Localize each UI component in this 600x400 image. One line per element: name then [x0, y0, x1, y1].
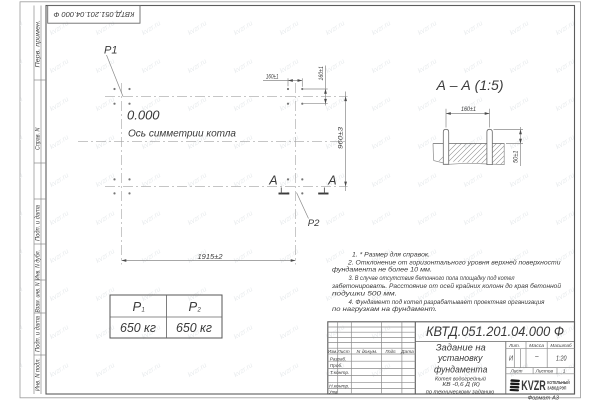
svg-text:по нагрузкам на фундамент.: по нагрузкам на фундамент. — [332, 305, 437, 313]
svg-text:Разраб.: Разраб. — [330, 357, 347, 362]
svg-text:Лист: Лист — [510, 368, 523, 373]
svg-text:А – А (1:5): А – А (1:5) — [435, 77, 503, 93]
svg-text:фундамента: фундамента — [434, 364, 488, 375]
svg-text:забетонировать. Расстояние от: забетонировать. Расстояние от осей крайн… — [331, 282, 561, 290]
svg-text:Р2: Р2 — [308, 218, 320, 229]
svg-text:КВ -0,6 Д (К): КВ -0,6 Д (К) — [442, 382, 480, 388]
svg-text:Подп. и дата: Подп. и дата — [34, 205, 42, 241]
svg-text:КОТЕЛЬНЫЙ: КОТЕЛЬНЫЙ — [547, 380, 570, 385]
svg-text:2: 2 — [197, 308, 202, 314]
svg-text:установку: установку — [437, 353, 484, 364]
svg-text:KVZR: KVZR — [521, 378, 546, 393]
svg-text:по техническому заданию: по техническому заданию — [426, 389, 495, 395]
svg-text:Листов: Листов — [535, 368, 554, 373]
svg-text:Задание на: Задание на — [436, 342, 486, 353]
svg-text:Дата: Дата — [400, 349, 414, 354]
svg-text:Взам. инв. N: Взам. инв. N — [35, 282, 42, 312]
svg-text:А: А — [327, 174, 336, 188]
svg-text:Подп. и дата: Подп. и дата — [34, 316, 42, 352]
svg-text:160±1: 160±1 — [461, 106, 476, 113]
svg-text:1915±2: 1915±2 — [198, 254, 223, 261]
svg-text:ЗАВОД РЭП: ЗАВОД РЭП — [547, 385, 566, 390]
svg-text:Масса: Масса — [529, 343, 544, 348]
svg-text:Подп.: Подп. — [386, 349, 397, 354]
svg-text:Утв.: Утв. — [329, 389, 338, 394]
svg-text:Н.контр.: Н.контр. — [329, 384, 349, 389]
svg-text:Справ. N: Справ. N — [35, 127, 42, 150]
svg-text:подушки 500 мм.: подушки 500 мм. — [332, 289, 397, 297]
svg-text:0.000: 0.000 — [127, 108, 160, 123]
svg-text:Формат А3: Формат А3 — [528, 395, 560, 400]
svg-text:Проб.: Проб. — [330, 363, 343, 368]
svg-text:50±1: 50±1 — [513, 150, 520, 163]
svg-text:960±3: 960±3 — [338, 127, 345, 149]
svg-text:Перв. примен.: Перв. примен. — [35, 20, 42, 68]
svg-text:160±1: 160±1 — [266, 75, 279, 81]
svg-text:А: А — [268, 174, 277, 188]
svg-text:1: 1 — [142, 308, 145, 314]
svg-text:1:20: 1:20 — [556, 354, 567, 363]
svg-text:3. В случае отсутствия бетонно: 3. В случае отсутствия бетонного пола пл… — [349, 274, 515, 282]
svg-text:650 кг: 650 кг — [176, 321, 212, 335]
svg-text:Р1: Р1 — [104, 45, 117, 57]
svg-text:2. Отклонение от горизонтально: 2. Отклонение от горизонтального уровня … — [347, 258, 561, 266]
svg-text:фундамента не более 10 мм.: фундамента не более 10 мм. — [332, 266, 432, 274]
svg-text:Инв. N дубл.: Инв. N дубл. — [34, 250, 42, 280]
svg-text:1: 1 — [563, 368, 566, 373]
svg-text:Ось симметрии котла: Ось симметрии котла — [128, 127, 236, 139]
svg-text:–: – — [534, 353, 539, 360]
svg-text:Инв. N подл.: Инв. N подл. — [34, 358, 42, 391]
svg-text:КВТД.051.201.04.000 Ф: КВТД.051.201.04.000 Ф — [54, 10, 135, 19]
svg-text:4. Фундамент под котел разраба: 4. Фундамент под котел разрабатывает про… — [349, 298, 545, 306]
svg-text:И: И — [509, 354, 514, 363]
svg-text:Р: Р — [133, 299, 142, 314]
svg-text:1. * Размер для справок.: 1. * Размер для справок. — [352, 250, 430, 258]
svg-text:N докум.: N докум. — [357, 349, 378, 354]
svg-text:650 кг: 650 кг — [120, 321, 156, 335]
svg-text:Масштаб: Масштаб — [550, 343, 572, 348]
svg-text:Лит.: Лит. — [508, 343, 520, 348]
svg-text:Т.контр.: Т.контр. — [330, 370, 350, 375]
svg-text:КВТД.051.201.04.000 Ф: КВТД.051.201.04.000 Ф — [426, 324, 564, 339]
svg-text:Изм.Лист: Изм.Лист — [328, 349, 350, 354]
svg-text:Р: Р — [189, 299, 198, 314]
svg-text:160±1: 160±1 — [319, 66, 325, 80]
